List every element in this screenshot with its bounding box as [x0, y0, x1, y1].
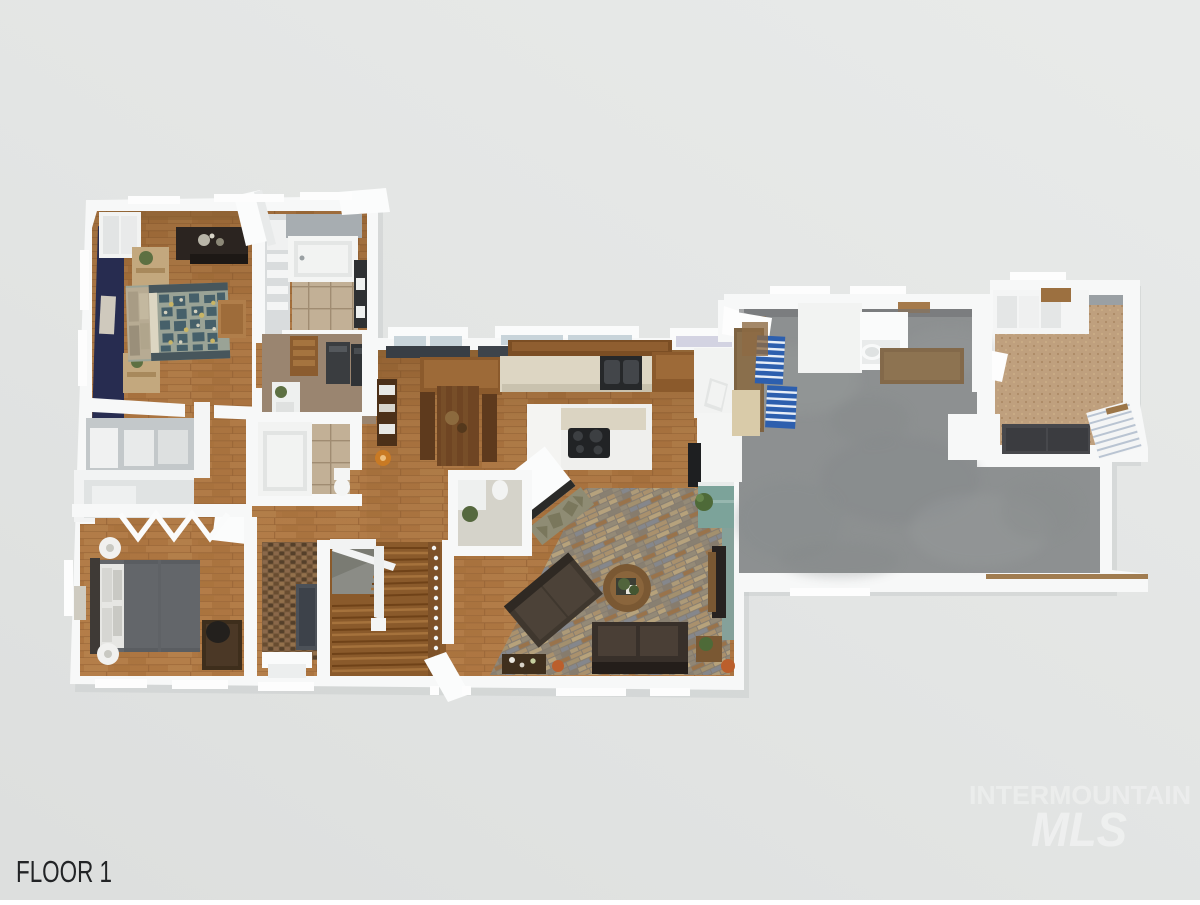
svg-text:MLS: MLS [1031, 804, 1127, 857]
svg-text:FLOOR 1: FLOOR 1 [16, 854, 112, 889]
